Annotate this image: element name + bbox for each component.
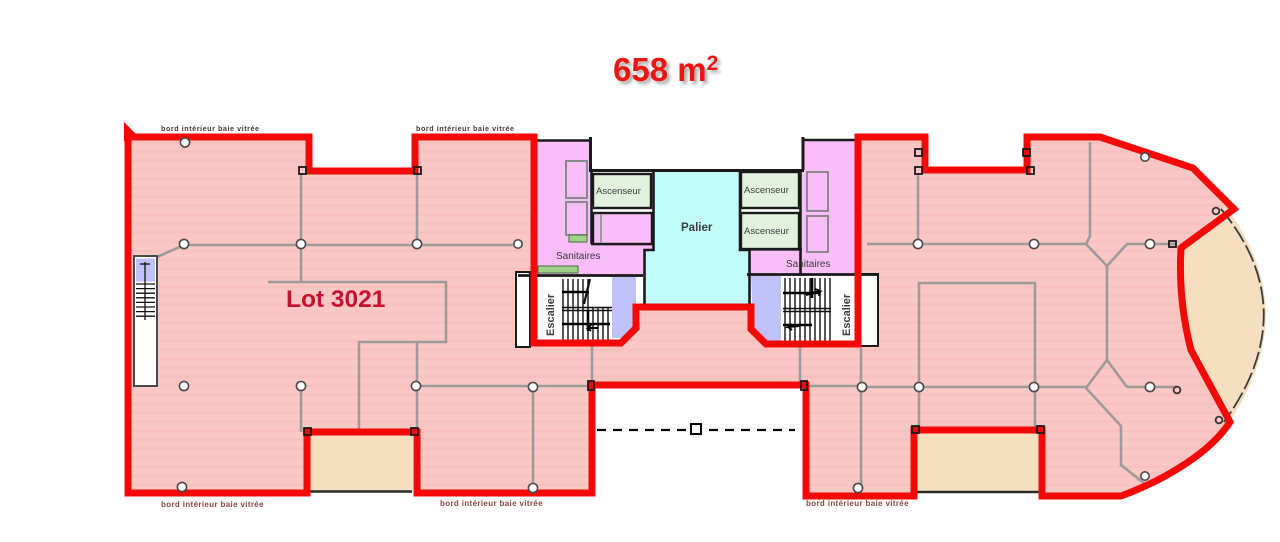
svg-text:Sanitaires: Sanitaires: [786, 259, 830, 270]
svg-text:Ascenseur: Ascenseur: [596, 186, 641, 197]
svg-text:Escalier: Escalier: [841, 293, 853, 336]
svg-text:bord intérieur baie vitrée: bord intérieur baie vitrée: [161, 124, 260, 133]
svg-text:bord intérieur baie vitrée: bord intérieur baie vitrée: [440, 499, 543, 508]
svg-text:Palier: Palier: [681, 222, 713, 234]
svg-text:bord intérieur baie vitrée: bord intérieur baie vitrée: [161, 500, 264, 509]
svg-text:bord intérieur baie vitrée: bord intérieur baie vitrée: [416, 124, 515, 133]
svg-text:Ascenseur: Ascenseur: [744, 185, 789, 196]
svg-text:Escalier: Escalier: [545, 293, 557, 336]
svg-text:Lot 3021: Lot 3021: [286, 286, 385, 313]
svg-text:Sanitaires: Sanitaires: [556, 251, 600, 262]
svg-text:bord intérieur baie vitrée: bord intérieur baie vitrée: [806, 499, 909, 508]
svg-text:Ascenseur: Ascenseur: [744, 226, 789, 237]
svg-text:658 m2: 658 m2: [613, 51, 718, 88]
